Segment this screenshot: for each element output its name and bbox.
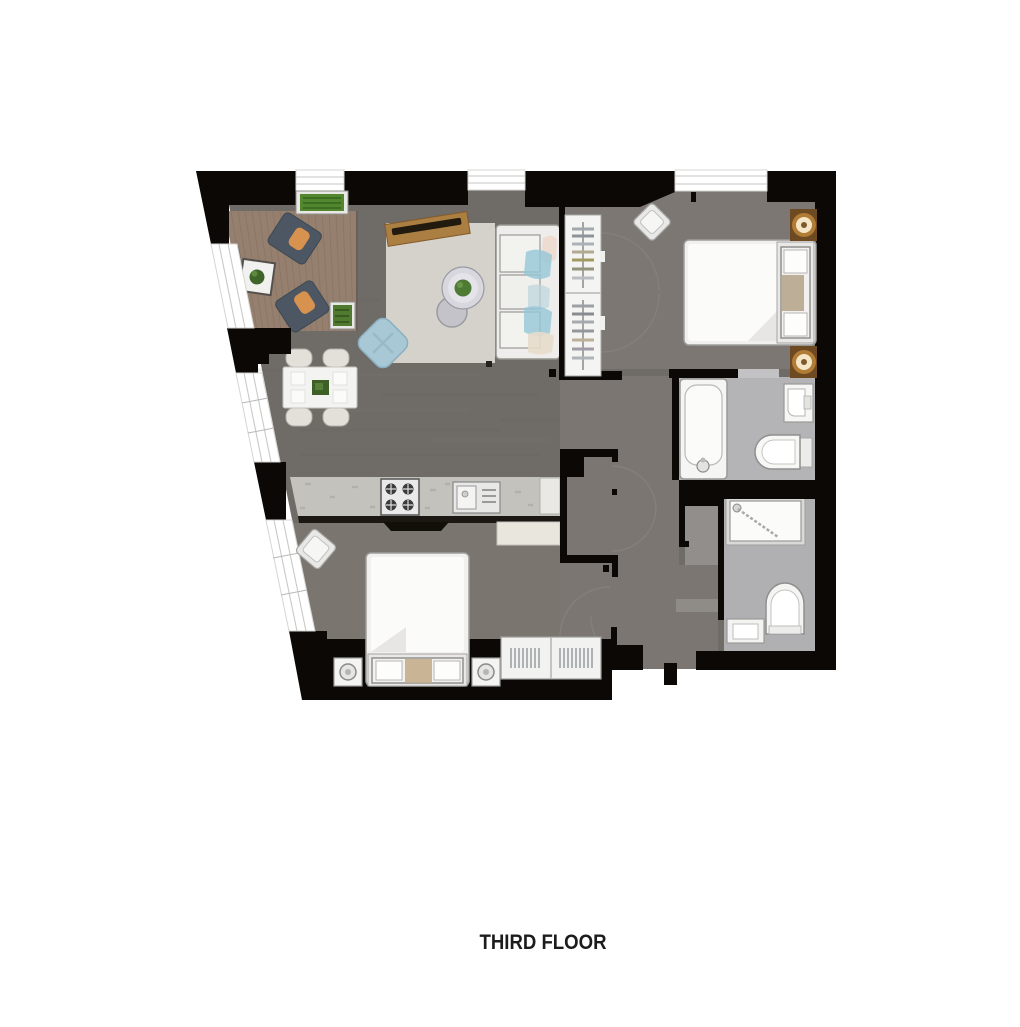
svg-text:THIRD FLOOR: THIRD FLOOR [480, 931, 607, 954]
